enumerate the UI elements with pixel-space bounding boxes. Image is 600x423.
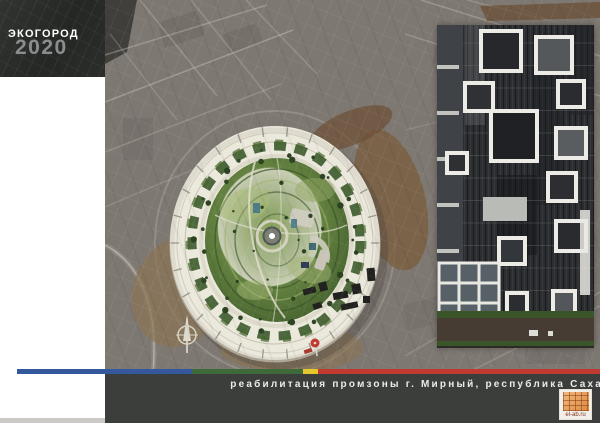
studio-logo: el-ab.ru <box>559 389 592 420</box>
left-margin-column: ЭКОГОРОД 2020 <box>0 0 105 423</box>
white-band <box>580 210 590 295</box>
balcony-slab <box>483 197 527 221</box>
caption-text: реабилитация промзоны г. Мирный, республ… <box>230 379 600 390</box>
caption-bar: реабилитация промзоны г. Мирный, республ… <box>105 374 600 423</box>
title-box: ЭКОГОРОД 2020 <box>0 0 105 77</box>
logo-url-text: el-ab.ru <box>565 411 585 419</box>
presentation-board: ЭКОГОРОД 2020 реабилитация промзоны г. М… <box>0 0 600 423</box>
bottom-edge-strip <box>0 418 105 423</box>
base-wall <box>437 318 594 343</box>
stripe-yellow-segment <box>303 369 318 374</box>
color-stripe <box>17 369 600 374</box>
project-year: 2020 <box>15 36 68 60</box>
stripe-green-segment <box>192 369 303 374</box>
logo-grid-image <box>563 392 589 411</box>
stripe-red-segment <box>318 369 600 374</box>
building-elevation <box>437 25 594 348</box>
stripe-blue-segment <box>17 369 192 374</box>
building-elevation-svg <box>437 25 594 348</box>
hedge-strip <box>437 311 594 318</box>
